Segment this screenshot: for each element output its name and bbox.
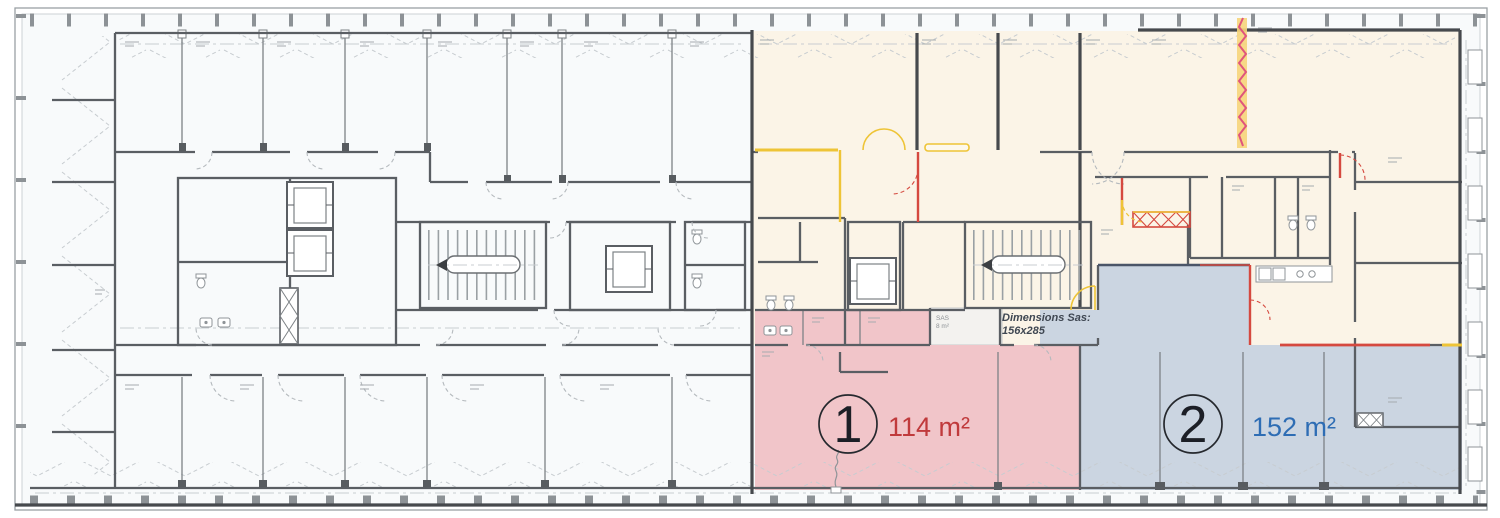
sink-icon (200, 318, 212, 327)
toilet-icon (692, 274, 702, 288)
zone-2-area-label: 152 m² (1252, 412, 1336, 442)
floor-plan-drawing: SAS 8 m² Dimensions Sas: 156x285 1 114 m… (0, 0, 1500, 518)
toilet-icon (692, 230, 702, 244)
shaft-icon (280, 288, 298, 344)
elevator-icon (287, 182, 333, 228)
zone-2-number: 2 (1179, 396, 1208, 454)
floor-plan: SAS 8 m² Dimensions Sas: 156x285 1 114 m… (0, 0, 1500, 518)
toilet-icon (784, 296, 794, 310)
sas-dimensions-note-line2: 156x285 (1002, 325, 1046, 337)
sink-icon (218, 318, 230, 327)
toilet-icon (766, 296, 776, 310)
zone-1-area-label: 114 m² (888, 412, 970, 442)
elevator-icon (287, 230, 333, 276)
sas-dimensions-note-line1: Dimensions Sas: (1002, 312, 1091, 324)
sink-icon (764, 326, 776, 335)
elevator-icon (606, 246, 652, 292)
zone-2-upper-room (1098, 265, 1250, 345)
elevator-icon (850, 258, 896, 304)
toilet-icon (196, 274, 206, 288)
shaft-icon (1357, 413, 1383, 427)
toilet-icon (1306, 216, 1316, 230)
toilet-icon (1288, 216, 1298, 230)
sas-room-label: SAS (936, 315, 950, 322)
zone-1-number: 1 (834, 396, 863, 454)
yellow-door-icon (925, 144, 969, 151)
sink-icon (780, 326, 792, 335)
sas-room-area: 8 m² (936, 323, 950, 330)
